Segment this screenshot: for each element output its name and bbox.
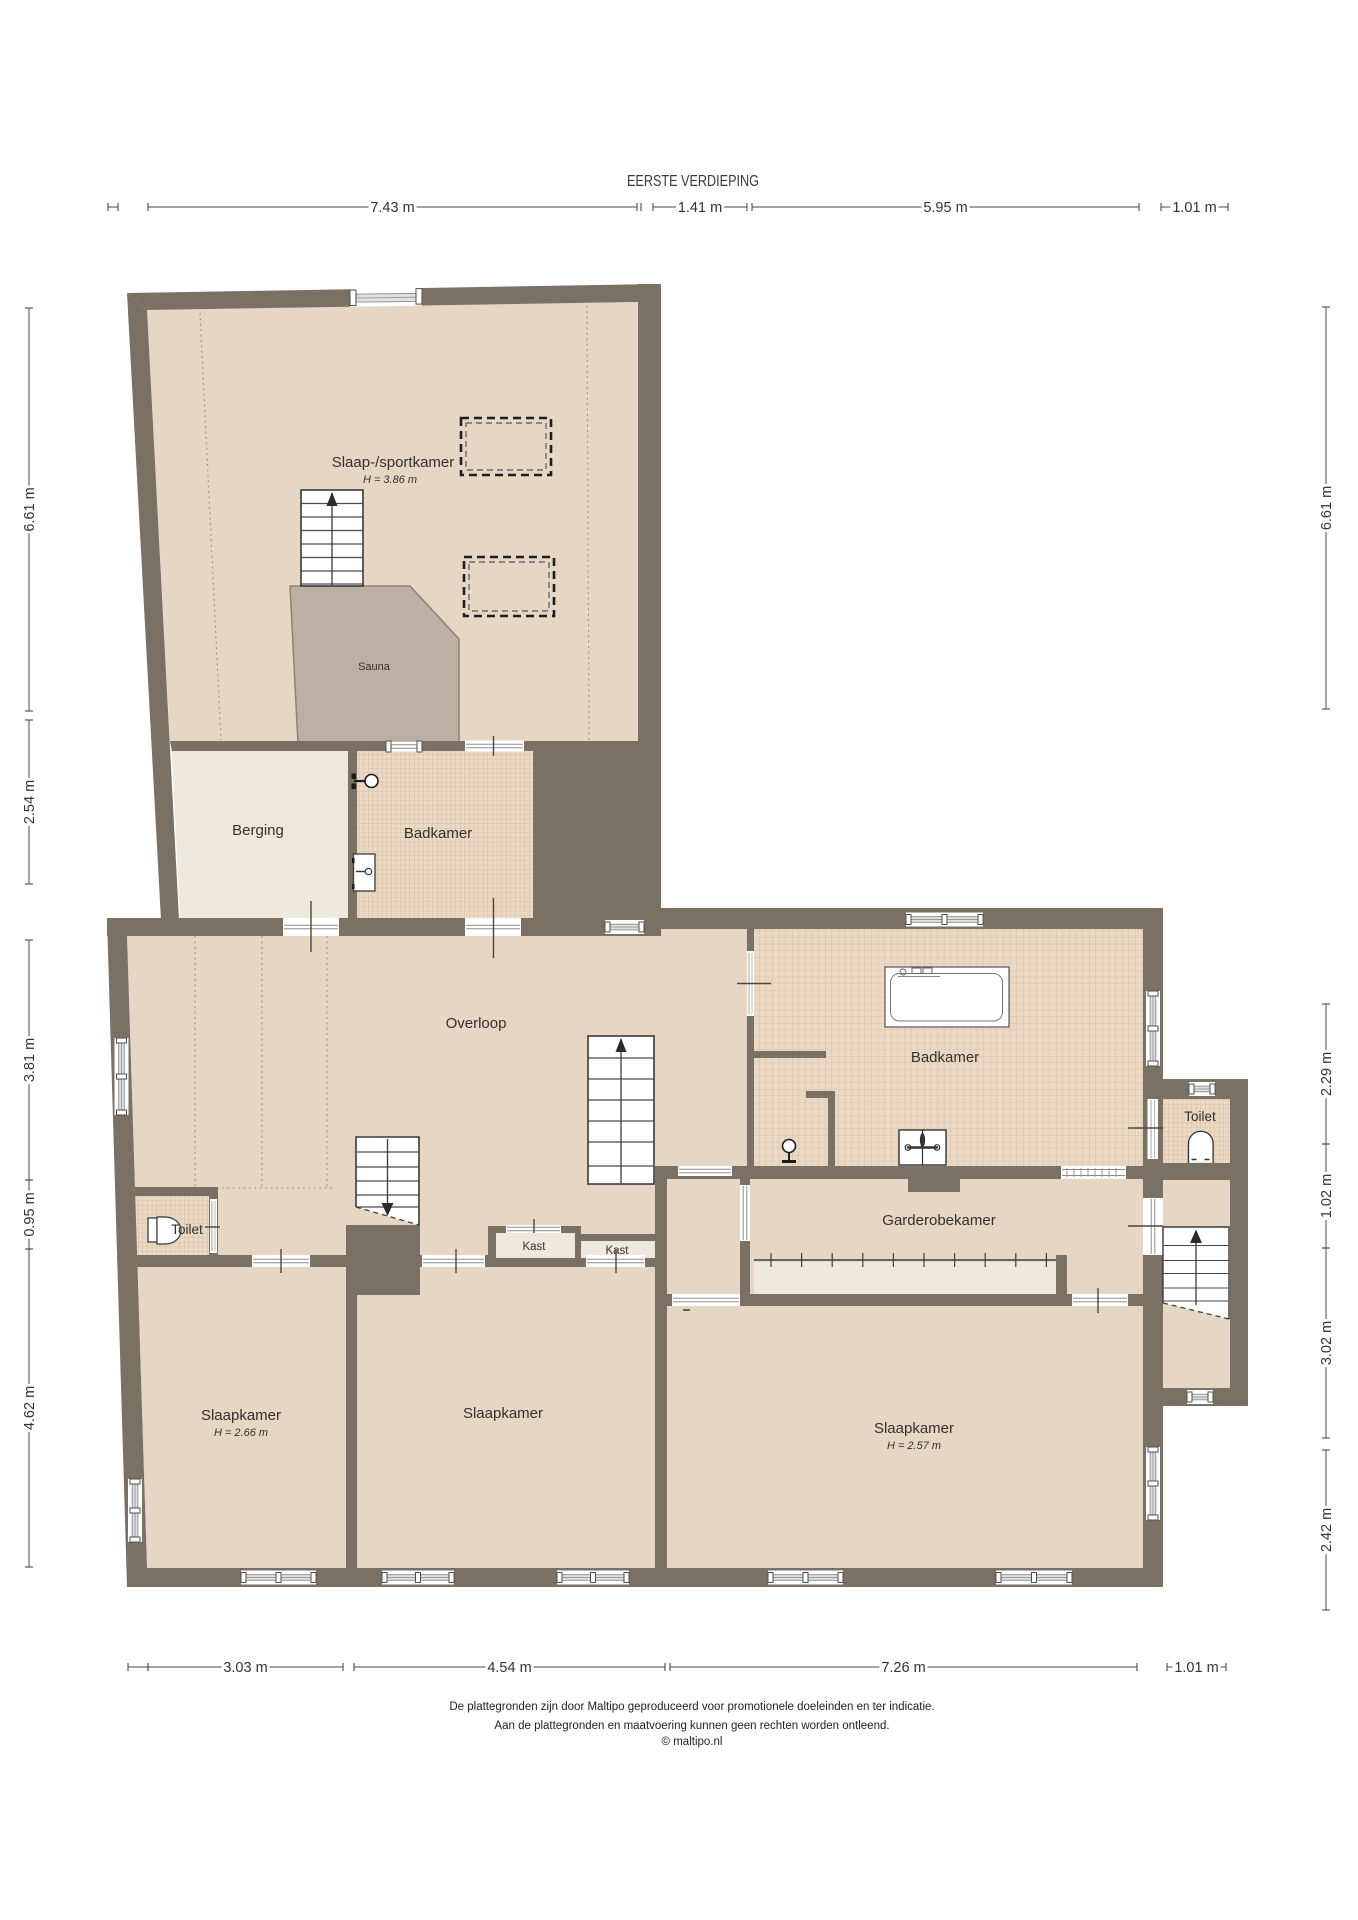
- svg-text:1.01 m: 1.01 m: [1174, 1660, 1218, 1676]
- svg-text:6.61 m: 6.61 m: [22, 487, 38, 531]
- svg-text:Toilet: Toilet: [1184, 1109, 1216, 1124]
- svg-text:Aan de plattegronden en maatvo: Aan de plattegronden en maatvoering kunn…: [494, 1720, 889, 1732]
- svg-text:Slaap-/sportkamer: Slaap-/sportkamer: [332, 454, 455, 471]
- svg-text:2.54 m: 2.54 m: [22, 780, 38, 824]
- svg-text:H = 2.66 m: H = 2.66 m: [214, 1427, 268, 1439]
- svg-text:Slaapkamer: Slaapkamer: [874, 1420, 954, 1437]
- svg-text:Slaapkamer: Slaapkamer: [463, 1405, 543, 1422]
- svg-text:3.81 m: 3.81 m: [22, 1038, 38, 1082]
- svg-text:1.01 m: 1.01 m: [1172, 200, 1216, 216]
- svg-text:7.26 m: 7.26 m: [881, 1660, 925, 1676]
- svg-text:Overloop: Overloop: [446, 1015, 507, 1032]
- svg-text:2.29 m: 2.29 m: [1319, 1052, 1335, 1096]
- svg-text:EERSTE VERDIEPING: EERSTE VERDIEPING: [627, 173, 759, 190]
- svg-text:1.41 m: 1.41 m: [678, 200, 722, 216]
- svg-text:4.62 m: 4.62 m: [22, 1386, 38, 1430]
- svg-text:1.02 m: 1.02 m: [1319, 1174, 1335, 1218]
- svg-text:4.54 m: 4.54 m: [487, 1660, 531, 1676]
- svg-text:Kast: Kast: [522, 1241, 546, 1253]
- svg-text:© maltipo.nl: © maltipo.nl: [662, 1736, 723, 1748]
- svg-text:Badkamer: Badkamer: [911, 1049, 979, 1066]
- svg-text:2.42 m: 2.42 m: [1319, 1508, 1335, 1552]
- svg-text:0.95 m: 0.95 m: [22, 1192, 38, 1236]
- svg-text:3.03 m: 3.03 m: [223, 1660, 267, 1676]
- svg-text:Berging: Berging: [232, 822, 284, 839]
- svg-text:H = 2.57 m: H = 2.57 m: [887, 1440, 941, 1452]
- svg-text:H = 3.86 m: H = 3.86 m: [363, 474, 417, 486]
- svg-text:Toilet: Toilet: [171, 1222, 203, 1237]
- svg-text:6.61 m: 6.61 m: [1319, 486, 1335, 530]
- svg-text:De plattegronden zijn door Mal: De plattegronden zijn door Maltipo gepro…: [449, 1701, 934, 1713]
- svg-text:7.43 m: 7.43 m: [370, 200, 414, 216]
- svg-text:3.02 m: 3.02 m: [1319, 1321, 1335, 1365]
- svg-text:5.95 m: 5.95 m: [923, 200, 967, 216]
- svg-text:Garderobekamer: Garderobekamer: [882, 1212, 995, 1229]
- svg-text:Slaapkamer: Slaapkamer: [201, 1407, 281, 1424]
- svg-text:Badkamer: Badkamer: [404, 825, 472, 842]
- svg-text:Sauna: Sauna: [358, 661, 391, 673]
